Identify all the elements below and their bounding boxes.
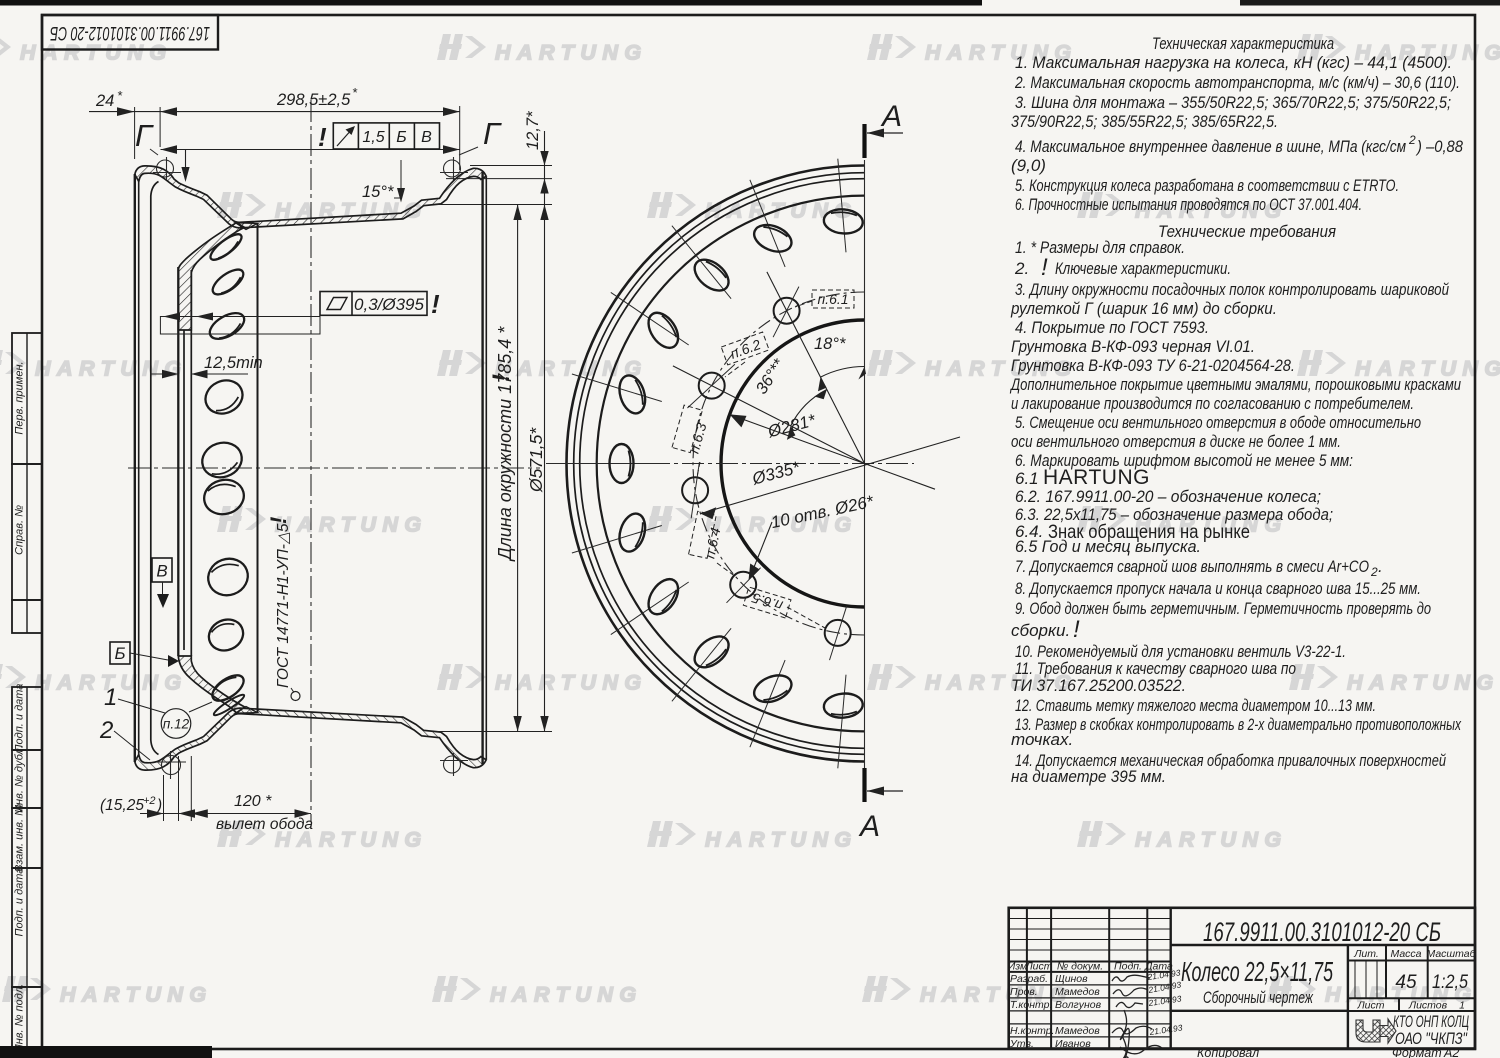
svg-text:Изм: Изм bbox=[1008, 961, 1027, 973]
svg-text:2.: 2. bbox=[1014, 259, 1029, 278]
svg-text:Ключевые характеристики.: Ключевые характеристики. bbox=[1055, 259, 1231, 278]
svg-text:вылет обода: вылет обода bbox=[216, 816, 313, 833]
svg-text:Подп.: Подп. bbox=[1114, 961, 1142, 973]
svg-text:ТИ 37.167.25200.03522.: ТИ 37.167.25200.03522. bbox=[1011, 676, 1186, 695]
svg-text:0,3/Ø395: 0,3/Ø395 bbox=[354, 295, 424, 314]
svg-text:!: ! bbox=[266, 517, 291, 524]
svg-text:Формат: Формат bbox=[1392, 1046, 1442, 1058]
svg-text:Лист: Лист bbox=[1024, 961, 1052, 973]
svg-text:Иванов: Иванов bbox=[1055, 1038, 1091, 1050]
svg-text:1:2,5: 1:2,5 bbox=[1432, 972, 1468, 993]
svg-text:КТО ОНП КОЛЦ: КТО ОНП КОЛЦ bbox=[1393, 1013, 1469, 1031]
svg-text:1,5: 1,5 bbox=[362, 129, 384, 146]
svg-text:Лит.: Лит. bbox=[1353, 948, 1379, 960]
svg-text:HARTUNG: HARTUNG bbox=[1043, 466, 1150, 489]
svg-text:Разраб.: Разраб. bbox=[1010, 973, 1048, 985]
svg-text:Волгунов: Волгунов bbox=[1055, 999, 1102, 1011]
svg-text:Б: Б bbox=[396, 129, 406, 146]
svg-text:Длина окружности 1785,4 *: Длина окружности 1785,4 * bbox=[495, 326, 515, 562]
svg-text:Справ. №: Справ. № bbox=[14, 505, 26, 555]
svg-text:Г: Г bbox=[135, 118, 154, 153]
svg-text:(9,0): (9,0) bbox=[1011, 156, 1046, 175]
svg-text:4. Покрытие по ГОСТ 7593.: 4. Покрытие по ГОСТ 7593. bbox=[1015, 318, 1209, 337]
svg-text:3. Длину окружности посадочны: 3. Длину окружности посадочных полок кон… bbox=[1015, 280, 1449, 299]
svg-text:Н.контр.: Н.контр. bbox=[1010, 1025, 1054, 1037]
svg-text:В: В bbox=[421, 129, 432, 146]
svg-text:!: ! bbox=[318, 122, 327, 152]
svg-text:13. Размер в скобках контроли: 13. Размер в скобках контролировать в 2-… bbox=[1015, 715, 1461, 734]
svg-text:6.1: 6.1 bbox=[1015, 469, 1039, 488]
svg-text:1. Максимальная нагрузка на ко: 1. Максимальная нагрузка на колеса, кН (… bbox=[1015, 53, 1452, 72]
svg-text:2. Максимальная скорость автот: 2. Максимальная скорость автотранспорта,… bbox=[1014, 73, 1460, 92]
svg-text:6.2. 167.9911.00-20 – обозначе: 6.2. 167.9911.00-20 – обозначение колеса… bbox=[1015, 487, 1321, 506]
svg-text:Мамедов: Мамедов bbox=[1055, 1025, 1100, 1037]
svg-text:167.9911.00.3101012-20 СБ: 167.9911.00.3101012-20 СБ bbox=[50, 22, 210, 43]
svg-text:Б: Б bbox=[114, 644, 125, 663]
svg-text:15°*: 15°* bbox=[362, 183, 394, 201]
svg-text:6.5 Год и месяц выпуска.: 6.5 Год и месяц выпуска. bbox=[1015, 537, 1201, 556]
svg-text:и лакирование производится по: и лакирование производится по согласован… bbox=[1011, 394, 1414, 413]
svg-text:2: 2 bbox=[1370, 565, 1378, 579]
svg-text:Техническая характеристика: Техническая характеристика bbox=[1152, 34, 1334, 53]
svg-text:) –0,88: ) –0,88 bbox=[1415, 137, 1463, 156]
svg-text:Мамедов: Мамедов bbox=[1055, 986, 1100, 998]
svg-text:45: 45 bbox=[1395, 972, 1417, 993]
svg-text:Инв. № подл.: Инв. № подл. bbox=[14, 984, 26, 1052]
svg-text:Ø571,5*: Ø571,5* bbox=[526, 427, 546, 493]
svg-text:12,7*: 12,7* bbox=[524, 111, 542, 150]
svg-text:А: А bbox=[880, 100, 902, 133]
svg-text:1: 1 bbox=[104, 684, 117, 711]
svg-text:2: 2 bbox=[1408, 133, 1416, 147]
svg-text:п.12: п.12 bbox=[163, 717, 190, 732]
svg-text:298,5±2,5: 298,5±2,5 bbox=[276, 91, 351, 109]
svg-text:12. Ставить метку тяжелого ме: 12. Ставить метку тяжелого места диаметр… bbox=[1015, 696, 1376, 715]
svg-text:5. Конструкция колеса разработ: 5. Конструкция колеса разработана в соот… bbox=[1015, 176, 1399, 195]
svg-text:Колесо 22,5×11,75: Колесо 22,5×11,75 bbox=[1181, 956, 1333, 987]
svg-text:А: А bbox=[858, 810, 880, 843]
svg-text:рулеткой Г (шарик 16 мм) до сб: рулеткой Г (шарик 16 мм) до сборки. bbox=[1010, 299, 1277, 318]
svg-text:Т.контр.: Т.контр. bbox=[1010, 999, 1052, 1011]
svg-text:Копировал: Копировал bbox=[1197, 1046, 1259, 1058]
svg-text:Масштаб: Масштаб bbox=[1426, 948, 1476, 960]
svg-text:12,5min: 12,5min bbox=[204, 354, 263, 372]
svg-text:Взам. инв. №: Взам. инв. № bbox=[14, 804, 26, 872]
svg-text:6. Прочностные испытания прово: 6. Прочностные испытания проводятся по О… bbox=[1015, 195, 1362, 214]
svg-text:): ) bbox=[155, 797, 162, 814]
svg-text:167.9911.00.3101012-20 СБ: 167.9911.00.3101012-20 СБ bbox=[1203, 917, 1441, 947]
svg-text:Лист: Лист bbox=[1356, 1000, 1384, 1012]
svg-text:!: ! bbox=[488, 374, 515, 382]
svg-text:В: В bbox=[156, 562, 167, 581]
svg-text:ГОСТ 14771-Н1-УП-△5: ГОСТ 14771-Н1-УП-△5 bbox=[275, 523, 292, 688]
svg-text:Грунтовка В-КФ-093 черная VI.: Грунтовка В-КФ-093 черная VI.01. bbox=[1011, 337, 1255, 356]
svg-text:Масса: Масса bbox=[1390, 948, 1421, 960]
svg-text:Листов: Листов bbox=[1408, 1000, 1448, 1012]
svg-text:1: 1 bbox=[1459, 1000, 1465, 1012]
svg-text:Дополнительное покрытие цветны: Дополнительное покрытие цветными эмалями… bbox=[1009, 375, 1461, 394]
svg-text:Пров.: Пров. bbox=[1010, 986, 1038, 998]
svg-text:18°*: 18°* bbox=[814, 335, 846, 353]
svg-text:!: ! bbox=[1073, 616, 1080, 643]
svg-text:.: . bbox=[1378, 557, 1383, 576]
svg-text:3. Шина для монтажа – 355/50R2: 3. Шина для монтажа – 355/50R22,5; 365/7… bbox=[1015, 93, 1451, 112]
svg-text:7. Допускается сварной шов вы: 7. Допускается сварной шов выполнять в с… bbox=[1015, 557, 1369, 576]
svg-text:8. Допускается пропуск начала: 8. Допускается пропуск начала и конца св… bbox=[1015, 579, 1421, 598]
svg-text:120 *: 120 * bbox=[234, 793, 272, 810]
svg-text:на диаметре 395 мм.: на диаметре 395 мм. bbox=[1011, 767, 1166, 786]
svg-text:+2: +2 bbox=[143, 795, 156, 807]
svg-text:Сборочный чертеж: Сборочный чертеж bbox=[1203, 988, 1314, 1007]
svg-text:4. Максимальное внутреннее дав: 4. Максимальное внутреннее давление в ши… bbox=[1015, 137, 1406, 156]
svg-text:2: 2 bbox=[99, 717, 113, 744]
svg-text:Перв. примен.: Перв. примен. bbox=[14, 361, 26, 434]
svg-text:Подп. и дата: Подп. и дата bbox=[14, 868, 26, 937]
svg-text:(15,25: (15,25 bbox=[100, 797, 144, 814]
svg-text:!: ! bbox=[1041, 254, 1048, 281]
svg-text:А2: А2 bbox=[1443, 1046, 1459, 1058]
svg-text:оси вентильного отверстия в ди: оси вентильного отверстия в диске не бол… bbox=[1011, 432, 1341, 451]
svg-text:Щинов: Щинов bbox=[1055, 973, 1088, 985]
svg-text:375/90R22,5; 385/55R22,5; 385/: 375/90R22,5; 385/55R22,5; 385/65R22,5. bbox=[1011, 112, 1278, 131]
svg-text:24: 24 bbox=[95, 92, 114, 110]
svg-text:Утв.: Утв. bbox=[1009, 1038, 1034, 1050]
svg-text:№ докум.: № докум. bbox=[1057, 961, 1103, 973]
svg-text:сборки.: сборки. bbox=[1011, 621, 1070, 640]
svg-text:!: ! bbox=[431, 289, 440, 319]
svg-text:Г: Г bbox=[483, 116, 502, 151]
svg-text:Подп. и дата: Подп. и дата bbox=[14, 684, 26, 753]
svg-text:Инв. № дубл.: Инв. № дубл. bbox=[14, 745, 26, 813]
svg-text:точках.: точках. bbox=[1011, 730, 1073, 749]
svg-text:п.6.1: п.6.1 bbox=[817, 291, 848, 307]
svg-text:Грунтовка В-КФ-093 ТУ 6-21-020: Грунтовка В-КФ-093 ТУ 6-21-0204564-28. bbox=[1011, 356, 1295, 375]
svg-text:5. Смещение оси вентильного о: 5. Смещение оси вентильного отверстия в … bbox=[1015, 413, 1421, 432]
